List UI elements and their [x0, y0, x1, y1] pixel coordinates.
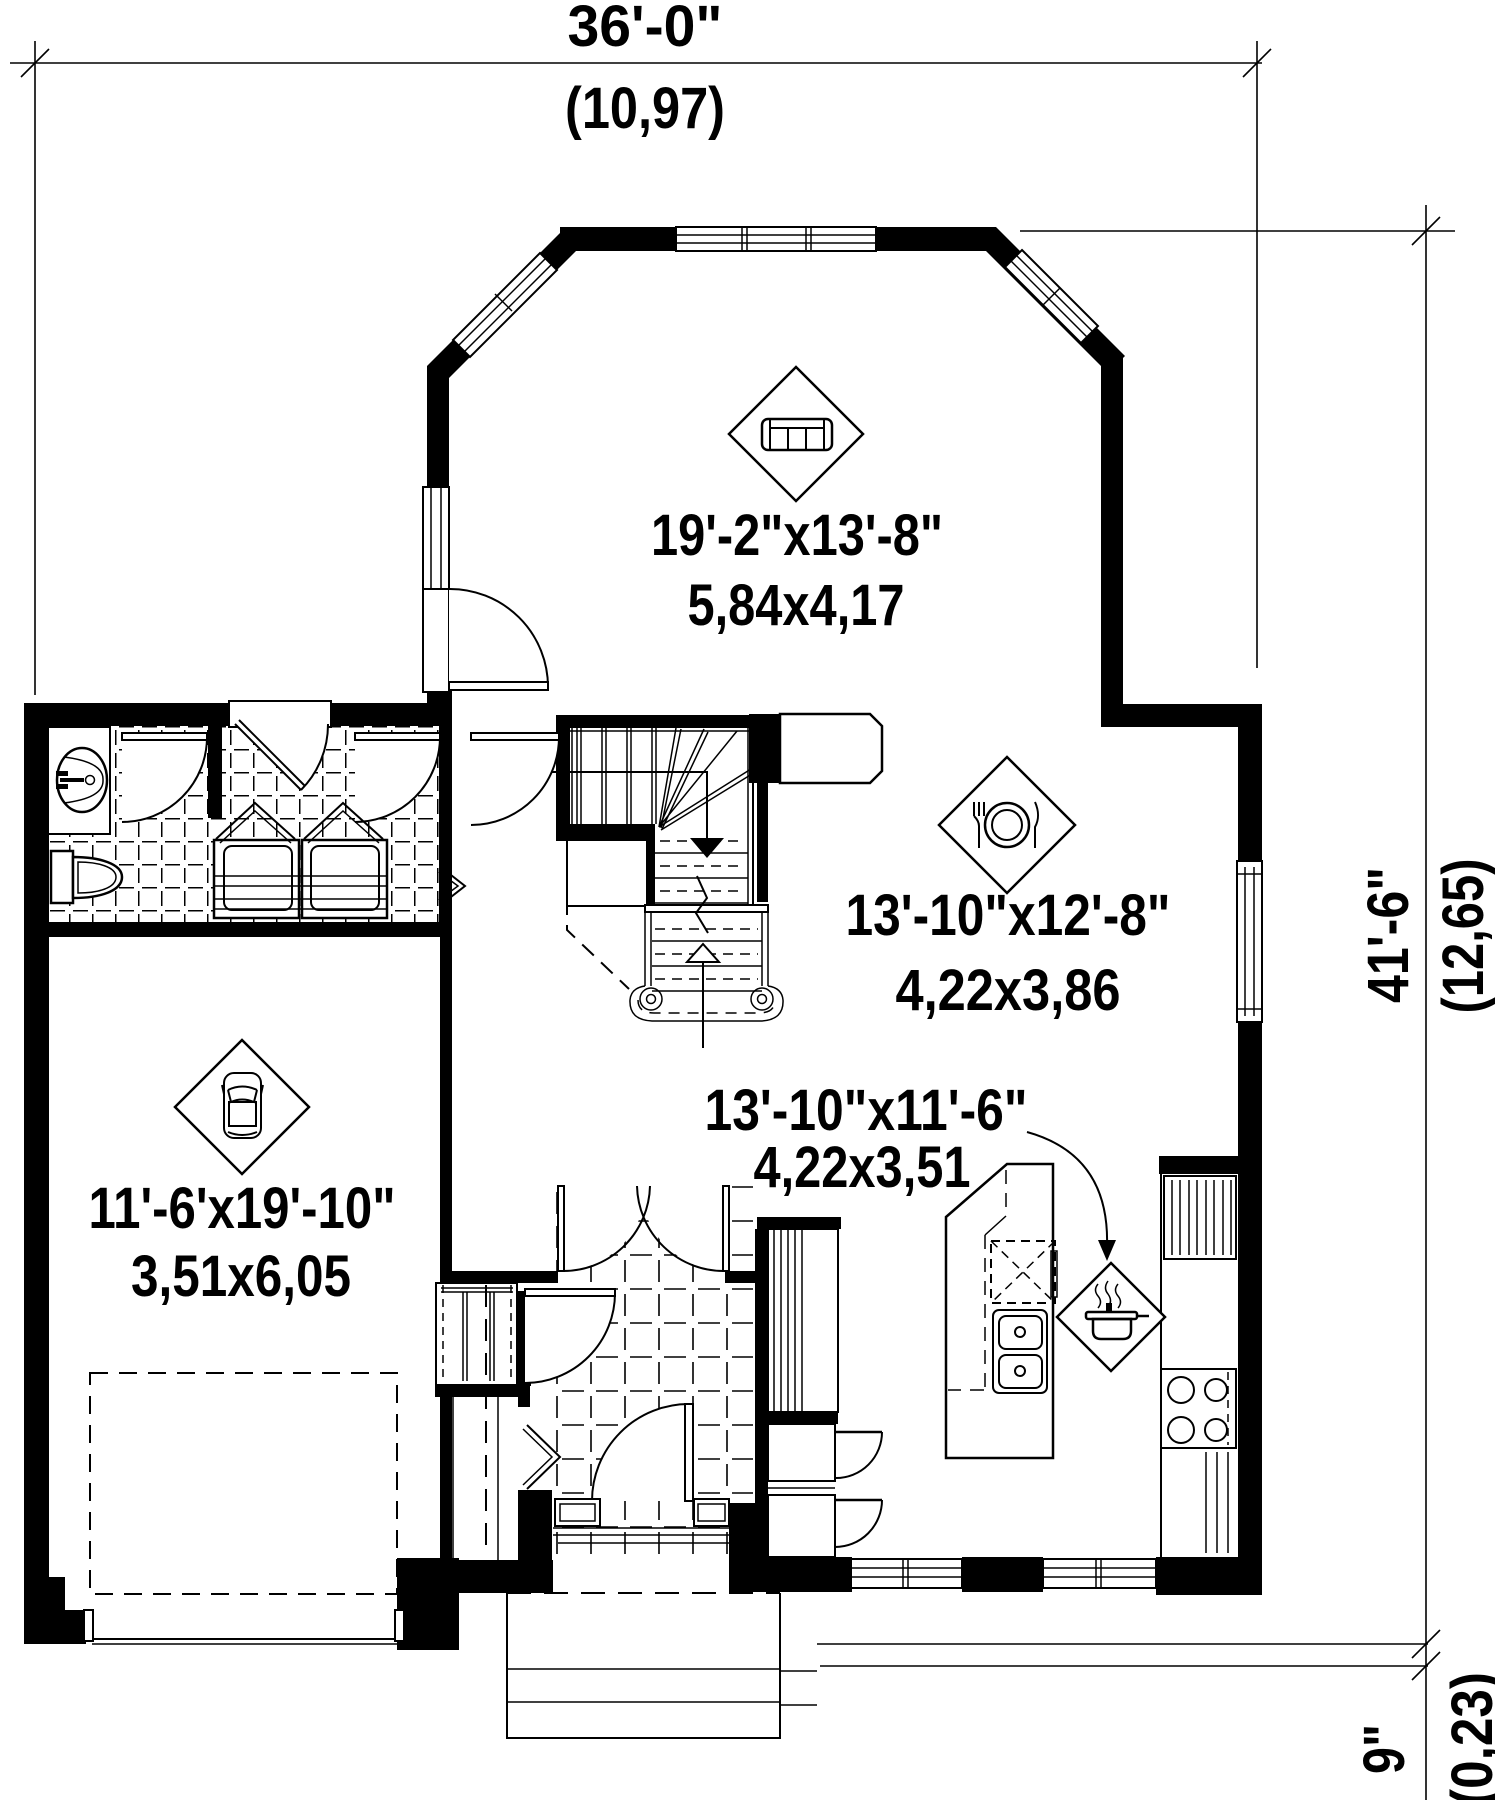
svg-text:19'-2"x13'-8": 19'-2"x13'-8"	[651, 503, 943, 568]
svg-text:41'-6": 41'-6"	[1356, 867, 1421, 1003]
svg-text:(0,23): (0,23)	[1440, 1672, 1495, 1800]
svg-text:(12,65): (12,65)	[1431, 859, 1495, 1014]
svg-text:(10,97): (10,97)	[565, 76, 725, 141]
svg-text:5,84x4,17: 5,84x4,17	[688, 573, 905, 638]
svg-text:4,22x3,86: 4,22x3,86	[896, 958, 1121, 1023]
svg-text:11'-6'x19'-10": 11'-6'x19'-10"	[89, 1176, 396, 1241]
svg-text:9": 9"	[1352, 1724, 1417, 1774]
svg-text:13'-10"x11'-6": 13'-10"x11'-6"	[705, 1078, 1028, 1143]
svg-text:36'-0": 36'-0"	[568, 0, 723, 59]
svg-text:4,22x3,51: 4,22x3,51	[754, 1135, 971, 1200]
svg-text:3,51x6,05: 3,51x6,05	[131, 1244, 351, 1309]
svg-text:13'-10"x12'-8": 13'-10"x12'-8"	[846, 883, 1171, 948]
